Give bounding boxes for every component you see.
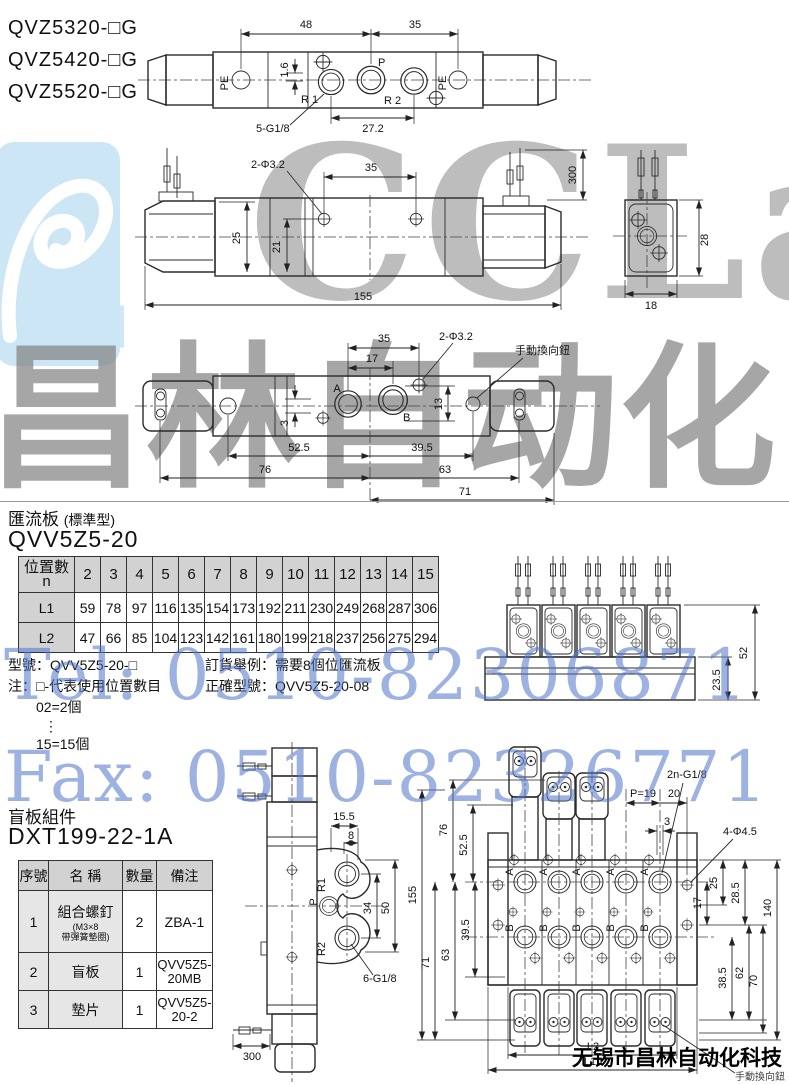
label-pe-right: PE xyxy=(437,76,449,91)
blind-table-header: 序號 名 稱 數量 備注 xyxy=(19,861,213,891)
label-pe-left: PE xyxy=(219,76,231,91)
dim-76: 76 xyxy=(259,464,271,476)
model-2: QVZ5420-□G xyxy=(8,44,138,76)
dim-155: 155 xyxy=(354,291,372,303)
dim-300: 300 xyxy=(567,166,579,184)
label-port-a: A xyxy=(333,383,341,395)
svg-text:B: B xyxy=(605,924,617,931)
dim-3: 3 xyxy=(279,420,291,426)
corner-cell: 位置數n xyxy=(19,557,75,593)
dim-300b: 300 xyxy=(243,1051,261,1063)
dim-63: 63 xyxy=(439,464,451,476)
dim-8: 8 xyxy=(348,830,354,842)
datasheet-page: CCLair 昌林自动化 QVZ5320-□G QVZ5420-□G QVZ55… xyxy=(0,0,789,1085)
dim-39-5: 39.5 xyxy=(411,442,432,454)
dim7-17: 17 xyxy=(692,897,704,909)
dim7-155: 155 xyxy=(407,886,419,904)
label-p: P xyxy=(378,57,385,69)
dim-21: 21 xyxy=(271,241,283,253)
dim-18: 18 xyxy=(645,300,657,312)
label-2-phi-3-2: 2-Φ3.2 xyxy=(251,159,285,171)
label-manual-override: 手動換向鈕 xyxy=(515,343,570,357)
label-p-port: P xyxy=(308,898,320,905)
label-r1-port: R1 xyxy=(316,878,328,892)
label-4-phi-4-5: 4-Φ4.5 xyxy=(723,826,757,838)
dim-17: 17 xyxy=(366,353,378,365)
svg-text:A: A xyxy=(504,868,516,876)
dim-25: 25 xyxy=(231,232,243,244)
dim-48: 48 xyxy=(300,19,312,31)
dim-13: 13 xyxy=(433,398,445,410)
label-r2-port: R2 xyxy=(316,942,328,956)
manifold-model: QVV5Z5-20 xyxy=(8,526,138,553)
dim-50: 50 xyxy=(380,902,392,914)
svg-text:A: A xyxy=(639,868,651,876)
tel-watermark: Tel: 0510-82306871 xyxy=(4,640,749,710)
dim7-28-5: 28.5 xyxy=(730,882,742,903)
label-r2: R 2 xyxy=(384,95,401,107)
dim-1-6: 1.6 xyxy=(279,62,291,77)
drawing-end-view: 28 18 xyxy=(603,146,738,318)
dim-35b: 35 xyxy=(365,162,377,174)
dim7-140: 140 xyxy=(762,899,774,917)
svg-text:B: B xyxy=(571,924,583,931)
dim-35c: 35 xyxy=(378,333,390,345)
dim7-62: 62 xyxy=(734,967,746,979)
company-watermark: 无锡市昌林自动化科技 xyxy=(572,1042,782,1072)
dim7-63: 63 xyxy=(440,949,452,961)
drawing-top-view: 48 35 1.6 PE PE P R 1 R 2 5-G1/8 27.2 xyxy=(138,14,596,146)
dim7-71: 71 xyxy=(420,957,432,969)
drawing-side-view: 300 2-Φ3.2 35 25 21 155 xyxy=(135,140,605,325)
dim7-52-5: 52.5 xyxy=(458,834,470,855)
blind-table-row-2: 2 盲板 1 QVV5Z5-20MB xyxy=(19,953,213,991)
blind-plate-table: 序號 名 稱 數量 備注 1 組合螺釘 (M3×8 帶彈簧墊圈) 2 ZBA-1… xyxy=(18,860,213,1029)
dim7-70: 70 xyxy=(748,975,760,987)
port-letters: A A A A A B B B B B xyxy=(504,868,651,932)
dim7-38-5: 38.5 xyxy=(717,967,729,988)
section-divider xyxy=(0,501,789,502)
svg-text:B: B xyxy=(504,924,516,931)
l1-row: L1 5978 97116 135154 173192 211230 24926… xyxy=(19,593,439,623)
dim-35: 35 xyxy=(409,19,421,31)
svg-text:B: B xyxy=(639,924,651,931)
blind-table-row-1: 1 組合螺釘 (M3×8 帶彈簧墊圈) 2 ZBA-1 xyxy=(19,891,213,953)
svg-text:A: A xyxy=(571,868,583,876)
dim-28: 28 xyxy=(699,234,711,246)
drawing-bottom-view: A B 35 17 2-Φ3.2 手動換向鈕 3 13 52.5 39.5 76… xyxy=(135,328,605,510)
blind-plate-model: DXT199-22-1A xyxy=(8,823,173,850)
model-3: QVZ5520-□G xyxy=(8,76,138,108)
dim7-76: 76 xyxy=(438,824,450,836)
svg-text:B: B xyxy=(538,924,550,931)
model-list: QVZ5320-□G QVZ5420-□G QVZ5520-□G xyxy=(8,12,138,108)
svg-text:A: A xyxy=(605,868,617,876)
blind-table-row-3: 3 墊片 1 QVV5Z5-20-2 xyxy=(19,991,213,1029)
dim-52-5: 52.5 xyxy=(288,442,309,454)
dim-34: 34 xyxy=(362,902,374,914)
svg-text:A: A xyxy=(538,868,550,876)
dim7-39-5: 39.5 xyxy=(460,919,472,940)
dim-71: 71 xyxy=(459,486,471,498)
note-dots: ⋮ xyxy=(44,718,161,734)
table-header-row: 位置數n 23 45 67 89 1011 1213 1415 xyxy=(19,557,439,593)
label-r1: R 1 xyxy=(301,94,318,106)
label-2-phi-3-2b: 2-Φ3.2 xyxy=(439,331,473,343)
manual-overrides xyxy=(510,990,675,1046)
fax-watermark: Fax: 0510-82326771 xyxy=(4,742,769,812)
label-6-g18: 6-G1/8 xyxy=(363,973,397,985)
label-5-g18: 5-G1/8 xyxy=(256,123,290,135)
dim7-25: 25 xyxy=(708,877,720,889)
label-port-b: B xyxy=(403,412,410,424)
model-1: QVZ5320-□G xyxy=(8,12,138,44)
dim-27-2: 27.2 xyxy=(362,123,383,135)
